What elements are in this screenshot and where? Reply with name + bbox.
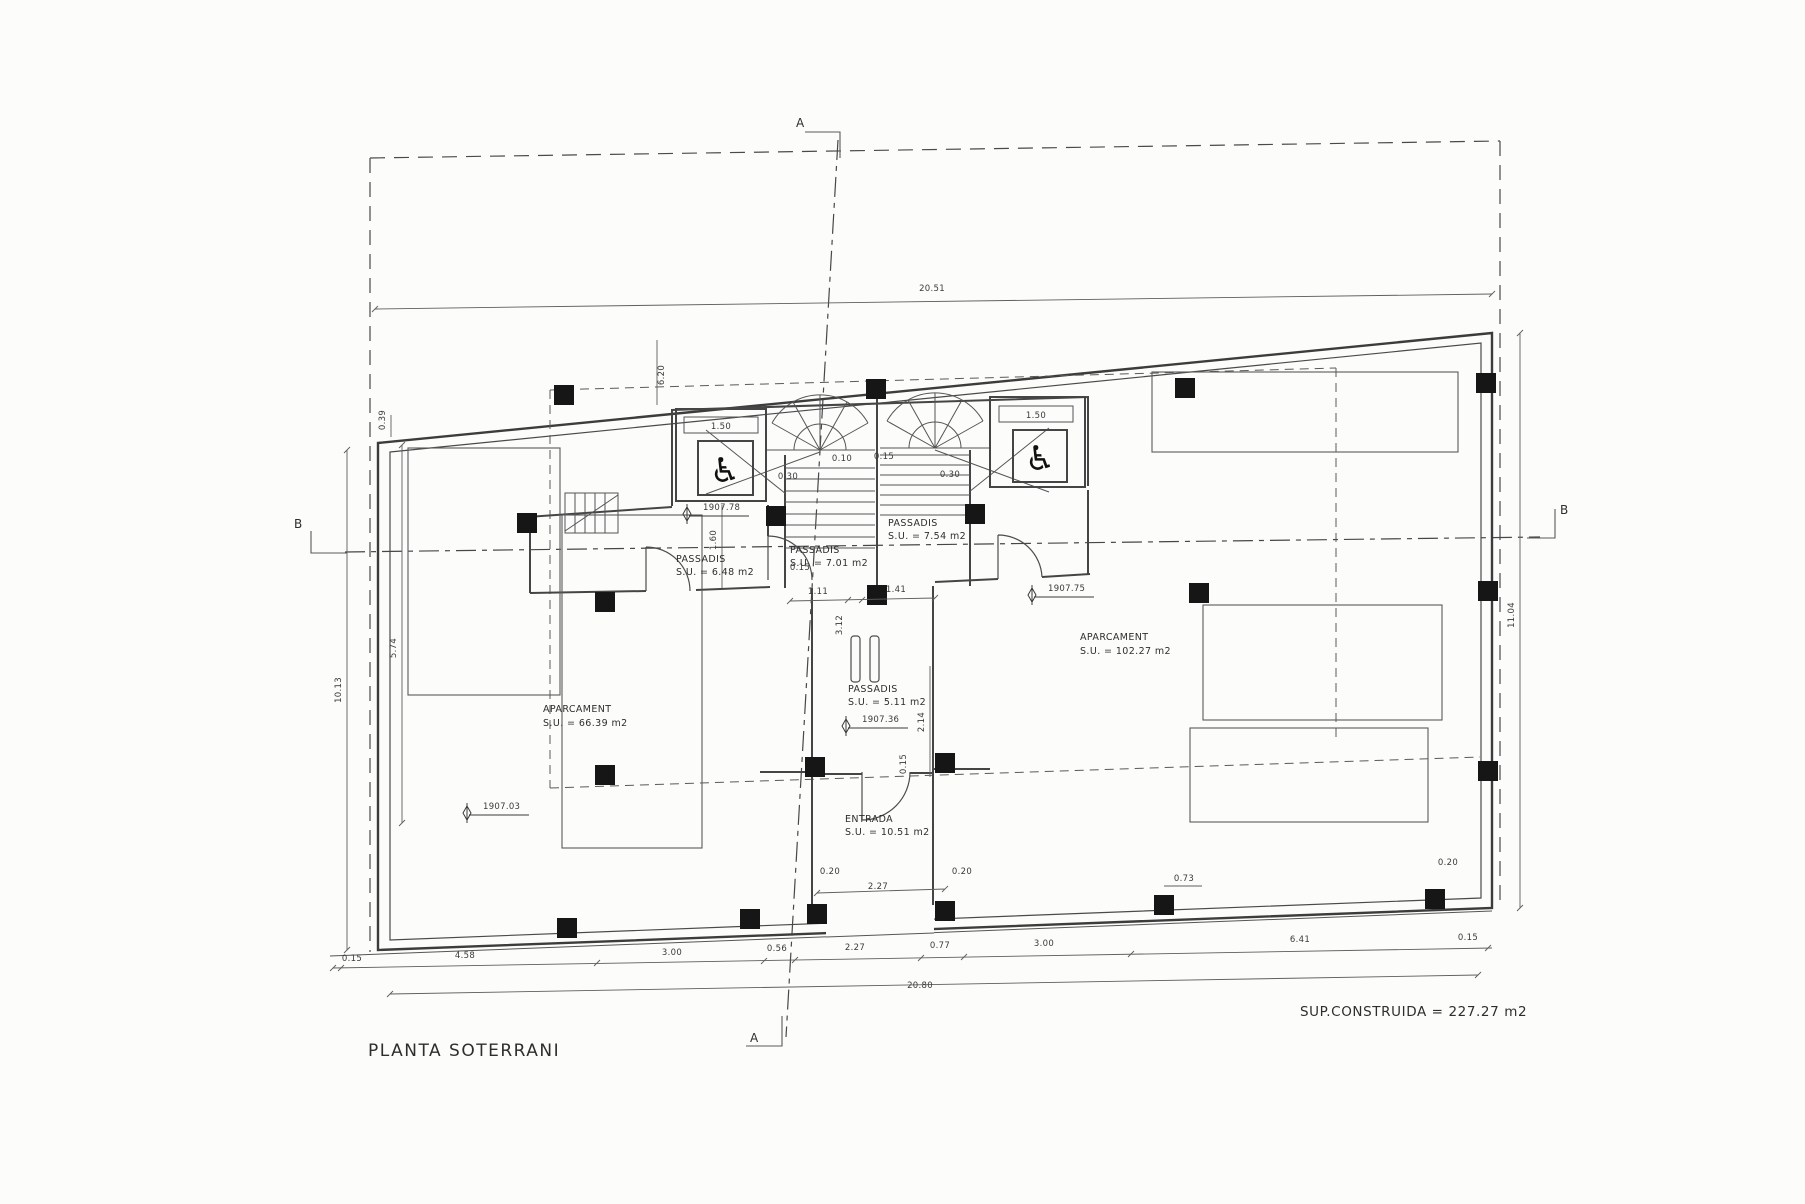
dim: 0.30 [940, 470, 960, 480]
dim: 1.41 [886, 585, 906, 595]
section-a-label-bottom: A [750, 1031, 759, 1045]
dim: 4.58 [455, 951, 475, 961]
dim: 10.13 [334, 677, 344, 703]
room-area: S.U. = 7.54 m2 [888, 531, 966, 542]
level-markers [463, 504, 1094, 823]
dim: 6.20 [657, 365, 667, 385]
dim: 0.15 [1458, 933, 1478, 943]
column [595, 765, 615, 785]
column [554, 385, 574, 405]
column [1154, 895, 1174, 915]
drawing-sheet: ♿ ♿ [0, 0, 1805, 1204]
room-area: S.U. = 66.39 m2 [543, 718, 628, 729]
dim: 5.74 [389, 638, 399, 658]
level-value: 1907.36 [862, 715, 899, 725]
column [517, 513, 537, 533]
dim: 0.20 [1438, 858, 1458, 868]
column [867, 585, 887, 605]
dim: 2.14 [917, 712, 927, 732]
dimension-lines [330, 291, 1523, 997]
level-value: 1907.75 [1048, 584, 1085, 594]
dim: 1.60 [709, 530, 719, 550]
room-area: S.U. = 102.27 m2 [1080, 646, 1171, 657]
room-label: PASSADIS [848, 684, 898, 695]
column [557, 918, 577, 938]
stairs [565, 393, 1049, 548]
dim: 1.50 [711, 422, 731, 432]
dim: 0.15 [342, 954, 362, 964]
dim: 0.10 [832, 454, 852, 464]
plan-title: PLANTA SOTERRANI [368, 1041, 560, 1061]
section-a-label-top: A [796, 116, 805, 130]
column [595, 592, 615, 612]
room-label: PASSADIS [888, 518, 938, 529]
room-label: ENTRADA [845, 814, 893, 825]
columns [517, 373, 1498, 938]
dim: 0.15 [874, 452, 894, 462]
dim: 1.11 [808, 587, 828, 597]
wheelchair-icon: ♿ [710, 451, 740, 491]
dim: 3.12 [835, 615, 845, 635]
column [935, 753, 955, 773]
room-label: APARCAMENT [1080, 632, 1149, 643]
dim: 0.39 [378, 410, 388, 430]
dim: 0.15 [899, 754, 909, 774]
dim-bottom-total: 20.80 [907, 981, 933, 991]
built-area-note: SUP.CONSTRUIDA = 227.27 m2 [1300, 1004, 1527, 1020]
column [935, 901, 955, 921]
wheelchair-icon: ♿ [1025, 439, 1055, 479]
room-label: PASSADIS [676, 554, 726, 565]
entrance-opening [826, 918, 934, 944]
dim: 3.00 [662, 948, 682, 958]
column [766, 506, 786, 526]
column [1175, 378, 1195, 398]
dim: 6.41 [1290, 935, 1310, 945]
column [1476, 373, 1496, 393]
column [1425, 889, 1445, 909]
dim: 1.50 [1026, 411, 1046, 421]
column [965, 504, 985, 524]
room-label: APARCAMENT [543, 704, 612, 715]
dim: 0.20 [820, 867, 840, 877]
section-b-label-left: B [294, 517, 302, 531]
dim: 11.04 [1507, 602, 1517, 628]
dim: 0.15 [790, 563, 810, 573]
column [807, 904, 827, 924]
column [866, 379, 886, 399]
dim: 2.27 [868, 882, 888, 892]
dim: 0.20 [952, 867, 972, 877]
level-value: 1907.78 [703, 503, 740, 513]
column [1478, 761, 1498, 781]
column [805, 757, 825, 777]
room-label: PASSADIS [790, 545, 840, 556]
dim: 0.30 [778, 472, 798, 482]
dim: 2.27 [845, 943, 865, 953]
dim: 3.00 [1034, 939, 1054, 949]
column [740, 909, 760, 929]
dim: 0.56 [767, 944, 787, 954]
section-b-label-right: B [1560, 503, 1568, 517]
dim: 0.77 [930, 941, 950, 951]
room-area: S.U. = 6.48 m2 [676, 567, 754, 578]
column [1189, 583, 1209, 603]
level-value: 1907.03 [483, 802, 520, 812]
room-area: S.U. = 5.11 m2 [848, 697, 926, 708]
dim: 0.73 [1174, 874, 1194, 884]
dim-top-total: 20.51 [919, 284, 945, 294]
room-area: S.U. = 10.51 m2 [845, 827, 930, 838]
column [1478, 581, 1498, 601]
